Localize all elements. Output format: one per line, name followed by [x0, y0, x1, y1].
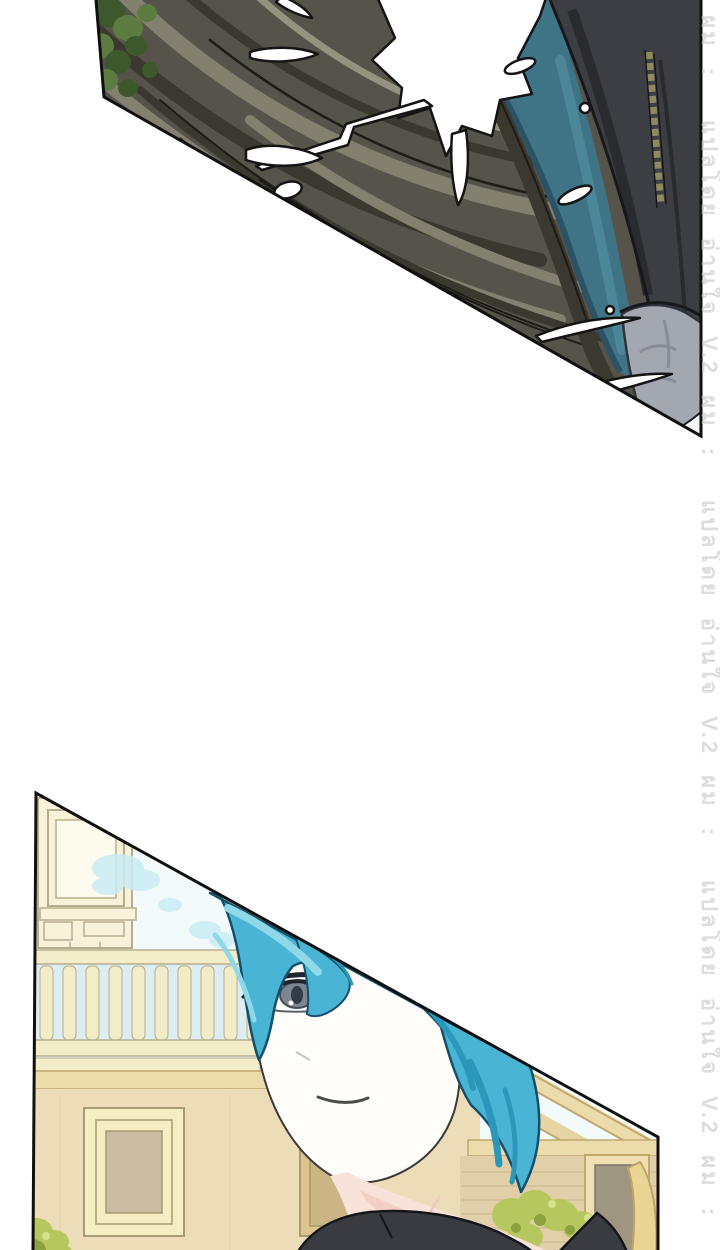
comic-page-svg: แปลโดย อ่านใจ V.2 ผม : แปลโดย อ่านใจ V.2…	[0, 0, 720, 1250]
watermark-text: แปลโดย อ่านใจ V.2 ผม :	[697, 0, 720, 78]
gloved-hand	[620, 303, 706, 440]
panel-top-artwork	[86, 0, 708, 444]
watermark-text: แปลโดย อ่านใจ V.2 ผม :	[697, 120, 720, 458]
watermark-text: แปลโดย อ่านใจ V.2 ผม :	[697, 500, 720, 838]
watermark-text: แปลโดย อ่านใจ V.2 ผม :	[697, 880, 720, 1218]
panel-bottom-artwork	[18, 788, 668, 1250]
watermark-column: แปลโดย อ่านใจ V.2 ผม : แปลโดย อ่านใจ V.2…	[697, 0, 720, 1218]
comic-page: แปลโดย อ่านใจ V.2 ผม : แปลโดย อ่านใจ V.2…	[0, 0, 720, 1250]
